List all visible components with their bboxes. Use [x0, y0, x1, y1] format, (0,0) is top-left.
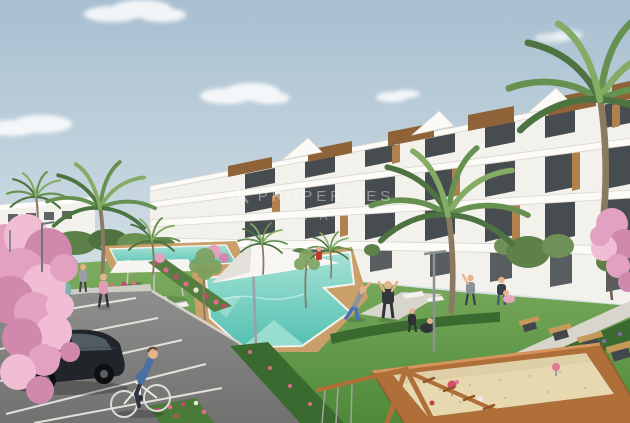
render-image: PROPERTIES SPAIN: [0, 0, 630, 423]
scene-canvas: [0, 0, 630, 423]
person-red: [316, 247, 322, 261]
